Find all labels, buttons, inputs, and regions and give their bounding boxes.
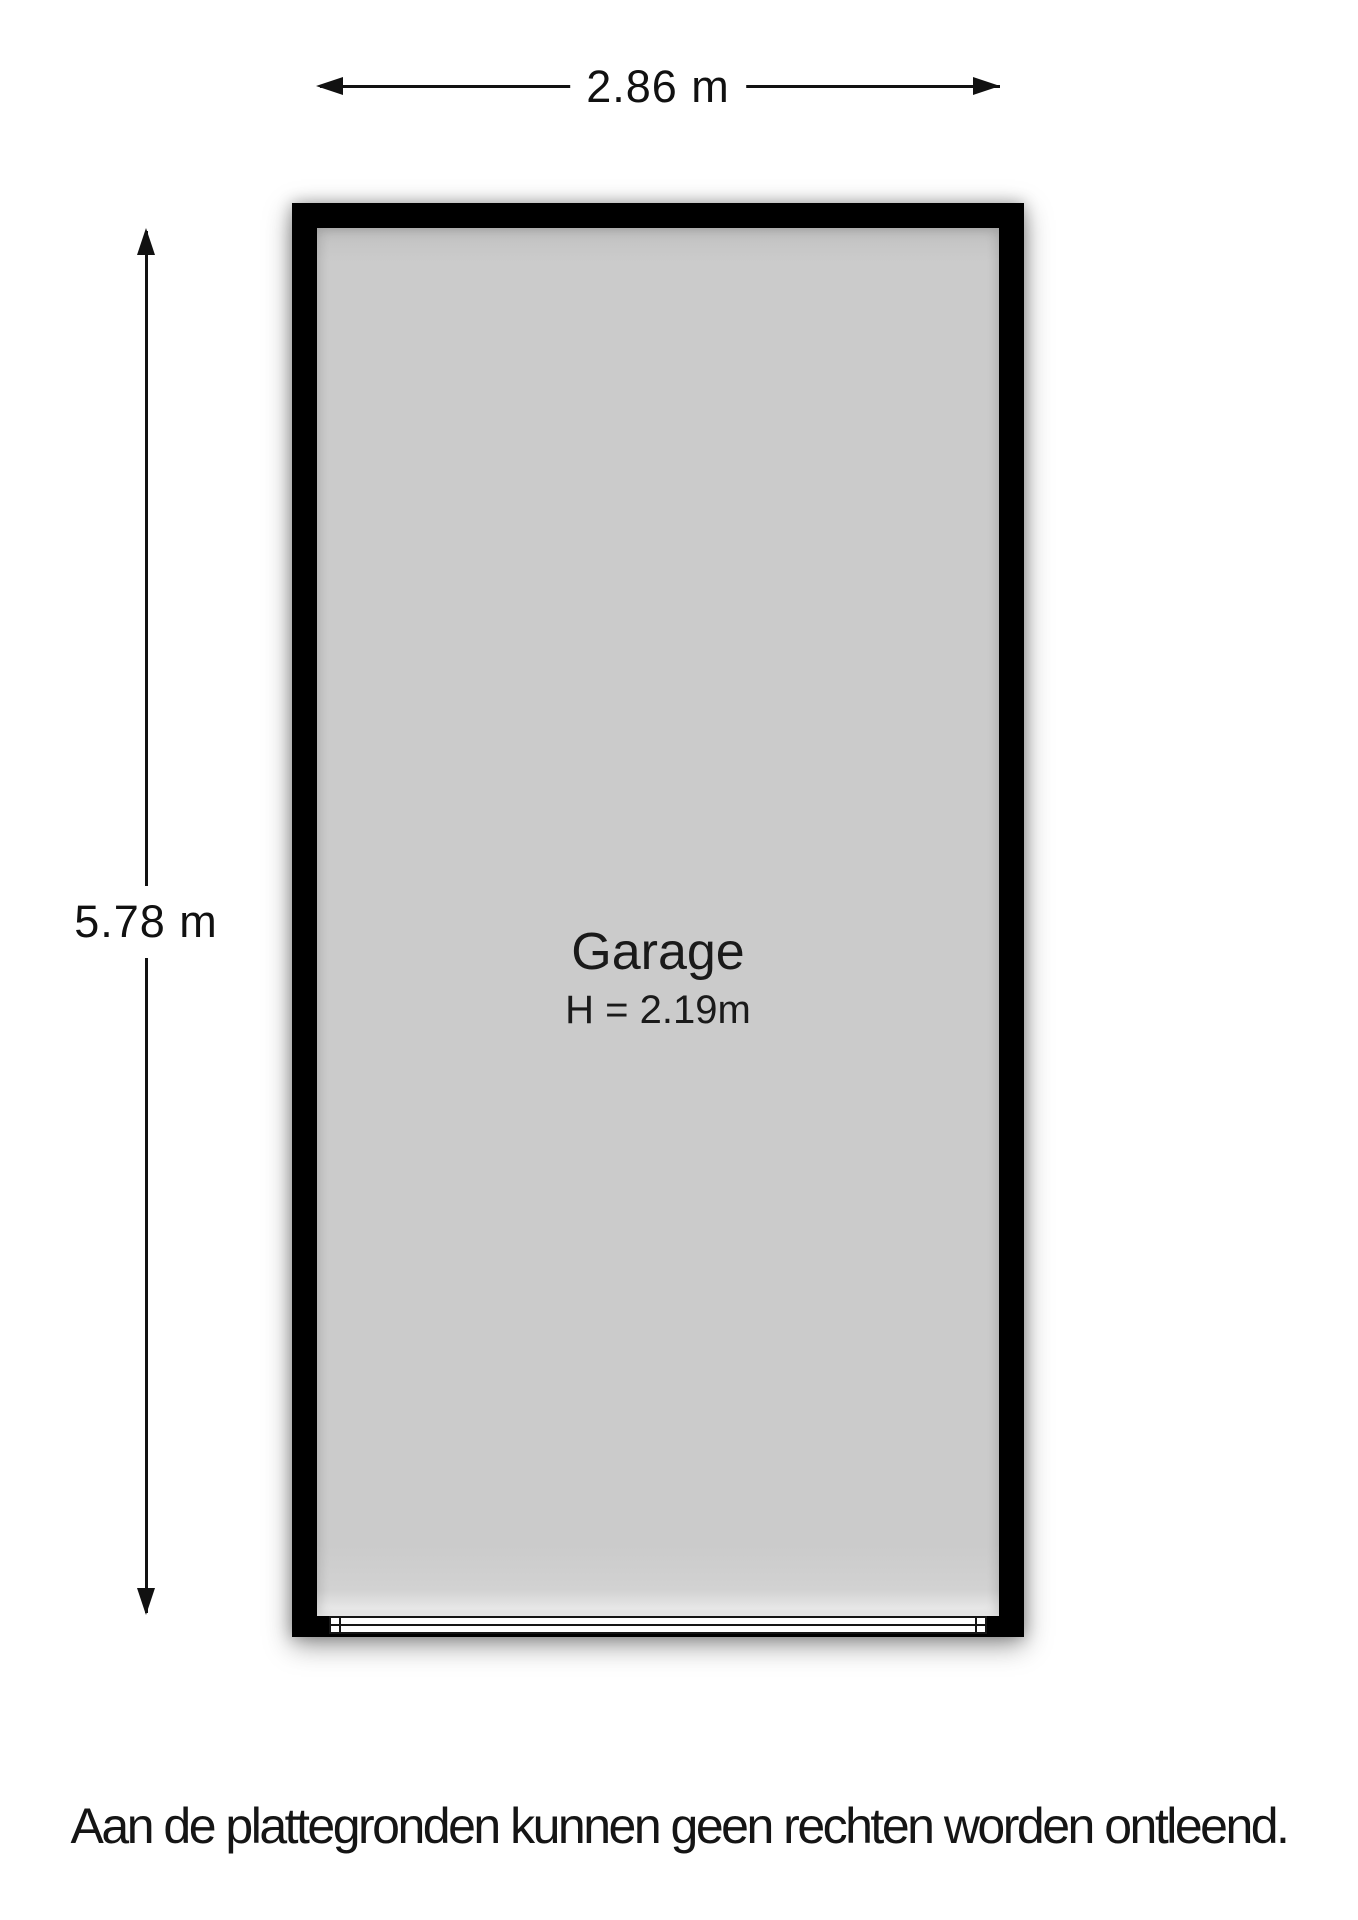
garage-door-middle-line: [331, 1624, 985, 1626]
room-name: Garage: [565, 926, 751, 978]
arrow-down-icon: [137, 1588, 155, 1615]
garage-door: [329, 1616, 987, 1634]
room-ceiling-height: H = 2.19m: [565, 990, 751, 1030]
arrow-right-icon: [973, 77, 1000, 95]
arrow-left-icon: [316, 77, 343, 95]
garage-floor: [317, 228, 999, 1616]
disclaimer-text: Aan de plattegronden kunnen geen rechten…: [71, 1797, 1288, 1855]
garage-walls: [292, 203, 1024, 1637]
arrow-up-icon: [137, 228, 155, 255]
garage-door-end-divider-left: [339, 1618, 341, 1632]
floorplan-canvas: 2.86 m 5.78 m Garage H = 2.19m Aan de pl…: [0, 0, 1358, 1920]
garage-door-end-divider-right: [975, 1618, 977, 1632]
depth-dimension-label: 5.78 m: [60, 886, 232, 958]
room-label: Garage H = 2.19m: [565, 926, 751, 1030]
width-dimension-label: 2.86 m: [570, 61, 746, 113]
